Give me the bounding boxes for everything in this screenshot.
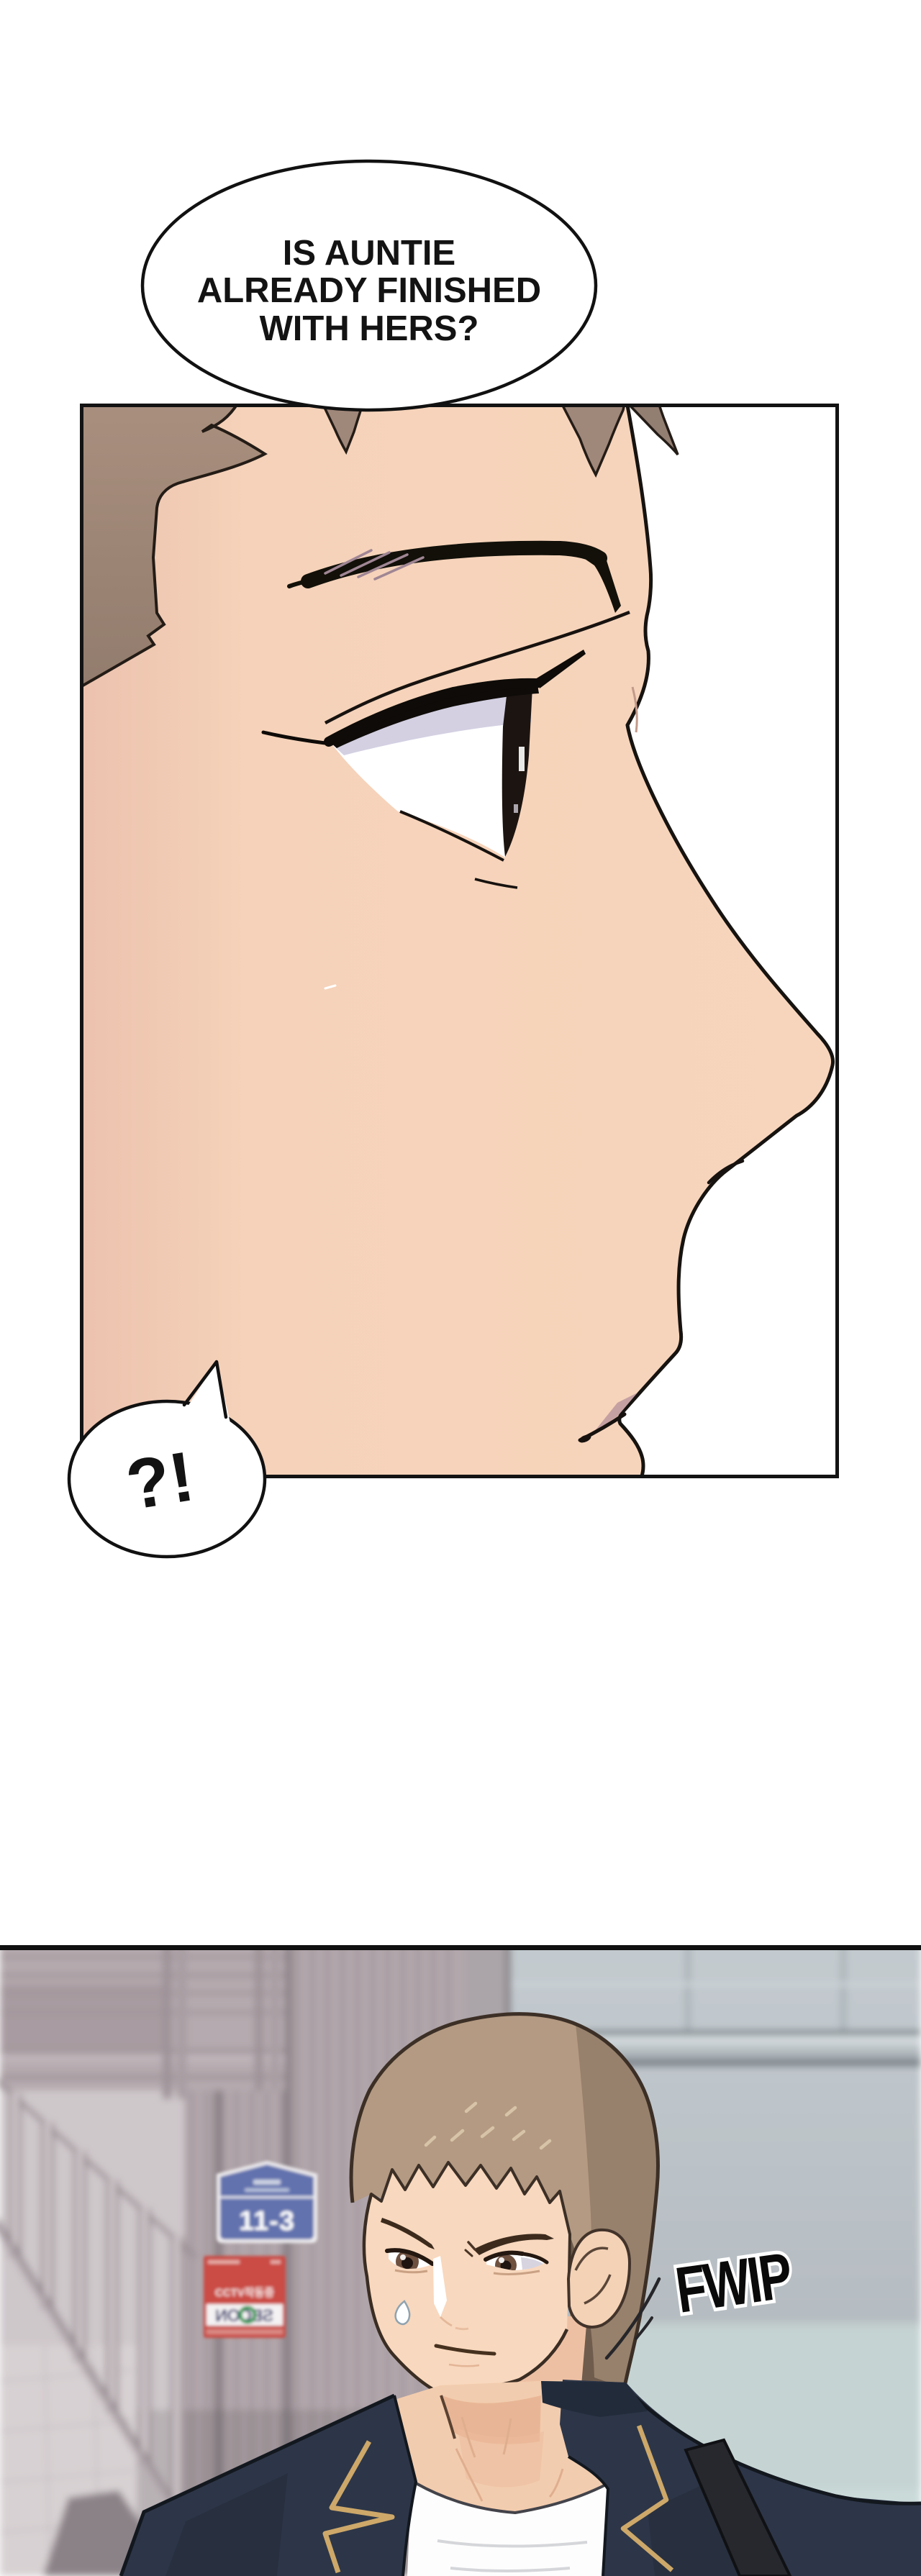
svg-text:?!: ?! <box>121 1436 199 1524</box>
svg-text:WITH HERS?: WITH HERS? <box>260 309 479 348</box>
svg-text:11-3: 11-3 <box>239 2206 295 2236</box>
svg-text:CCTV작동중: CCTV작동중 <box>215 2286 274 2299</box>
svg-text:ALREADY FINISHED: ALREADY FINISHED <box>197 271 541 310</box>
svg-text:IS AUNTIE: IS AUNTIE <box>283 234 455 273</box>
